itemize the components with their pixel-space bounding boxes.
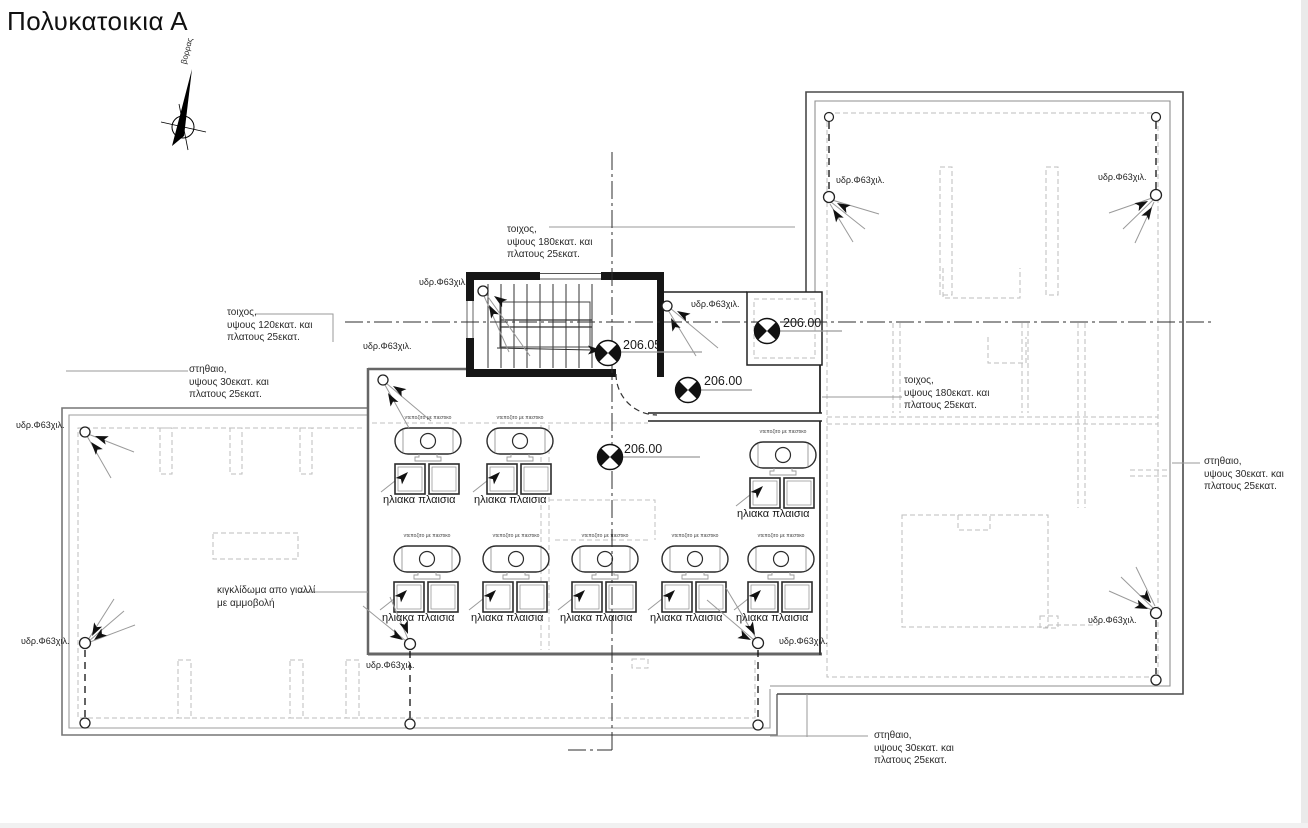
tank-label: ντεποζιτο με πιεστικο [570,533,640,539]
level-206-00-corridor: 206.00 [704,374,742,388]
hydro-label-corridor: υδρ.Φ63χιλ. [691,299,739,309]
pipe-callout-roof-bottomleft [80,599,136,728]
tank-label: ντεποζιτο με πιεστικο [393,415,463,421]
solar-panel-label: ηλιακα πλαισια [736,612,809,624]
note-parapet-right: στηθαιο, υψους 30εκατ. και πλατους 25εκα… [1204,456,1284,494]
level-206-00-room: 206.00 [783,316,821,330]
solar-panel-label: ηλιακα πλαισια [560,612,633,624]
tank-label: ντεποζιτο με πιεστικο [392,533,462,539]
solar-unit [469,546,549,612]
level-206-05: 206.05 [623,338,661,352]
hydro-label-building-topleft: υδρ.Φ63χιλ. [836,175,884,185]
hydro-label-terrace-corner: υδρ.Φ63χιλ. [363,341,411,351]
pipe-callout-corridor [662,301,718,356]
page-title: Πολυκατοικια Α [7,6,188,37]
solar-panel-label: ηλιακα πλαισια [737,508,810,520]
solar-unit [736,442,816,508]
hydro-label-roof-bottomleft: υδρ.Φ63χιλ. [21,636,69,646]
note-parapet-left: στηθαιο, υψους 30εκατ. και πλατους 25εκα… [189,364,269,402]
solar-panel-label: ηλιακα πλαισια [474,494,547,506]
note-wall-120: τοιχος, υψους 120εκατ. και πλατους 25εκα… [227,307,312,345]
plan-drawing [0,0,1308,828]
floor-below-outline-right [827,113,1170,677]
north-arrow-icon [161,69,206,150]
solar-unit [648,546,728,612]
hydro-label-building-topright: υδρ.Φ63χιλ. [1098,172,1146,182]
tank-label: ντεποζιτο με πιεστικο [660,533,730,539]
solar-panel-label: ηλιακα πλαισια [471,612,544,624]
page-edge-bottom [0,823,1308,828]
note-wall-180-right: τοιχος, υψους 180εκατ. και πλατους 25εκα… [904,375,989,413]
hydro-label-terrace-bottomright: υδρ.Φ63χιλ. [779,636,827,646]
tank-label: ντεποζιτο με πιεστικο [748,429,818,435]
solar-unit [734,546,814,612]
pipe-callout-building-bottomright [1109,567,1162,685]
pipe-callouts [80,113,1162,731]
solar-panel-label: ηλιακα πλαισια [383,494,456,506]
hydro-label-terrace-bottomcenter: υδρ.Φ63χιλ. [366,660,414,670]
solar-panel-label: ηλιακα πλαισια [382,612,455,624]
level-206-00-terrace: 206.00 [624,442,662,456]
hydro-label-stair: υδρ.Φ63χιλ. [419,277,467,287]
page-edge-right [1301,0,1308,828]
hydro-label-building-bottomright: υδρ.Φ63χιλ. [1088,615,1136,625]
note-parapet-bottom: στηθαιο, υψους 30εκατ. και πλατους 25εκα… [874,730,954,768]
solar-unit [381,428,461,494]
solar-panel-label: ηλιακα πλαισια [650,612,723,624]
door-swing-arc [616,374,657,415]
tank-label: ντεποζιτο με πιεστικο [746,533,816,539]
note-wall-180-top: τοιχος, υψους 180εκατ. και πλατους 25εκα… [507,224,592,262]
pipe-callout-roof-topleft [80,427,134,478]
floor-plan-canvas: Πολυκατοικια Α βορρας τοιχος, υψους 180ε… [0,0,1308,828]
note-glass-railing: κιγκλίδωμα απο γιαλλί με αμμοβολή [217,585,315,610]
tank-label: ντεποζιτο με πιεστικο [485,415,555,421]
tank-label: ντεποζιτο με πιεστικο [481,533,551,539]
hydro-label-roof-topleft: υδρ.Φ63χιλ. [16,420,64,430]
solar-unit [558,546,638,612]
